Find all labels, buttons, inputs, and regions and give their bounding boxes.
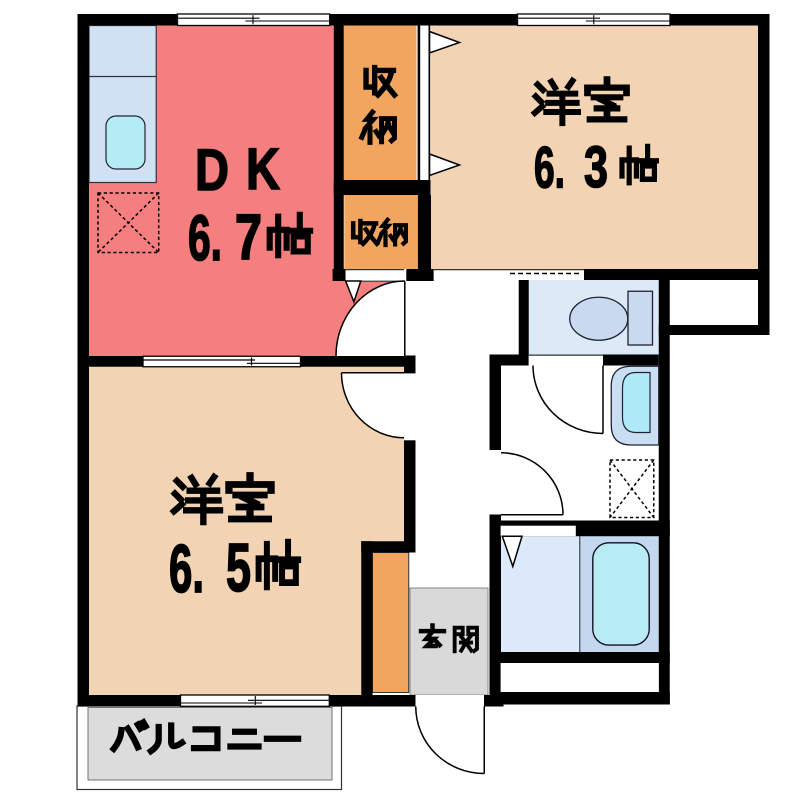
svg-text:6.: 6. (169, 531, 204, 607)
svg-text:6.: 6. (188, 202, 222, 274)
svg-text:6.: 6. (534, 136, 565, 201)
svg-text:3: 3 (584, 135, 608, 200)
svg-text:5: 5 (226, 530, 251, 606)
svg-text:7: 7 (235, 201, 262, 273)
svg-text:D: D (195, 138, 229, 203)
svg-text:K: K (246, 137, 280, 202)
